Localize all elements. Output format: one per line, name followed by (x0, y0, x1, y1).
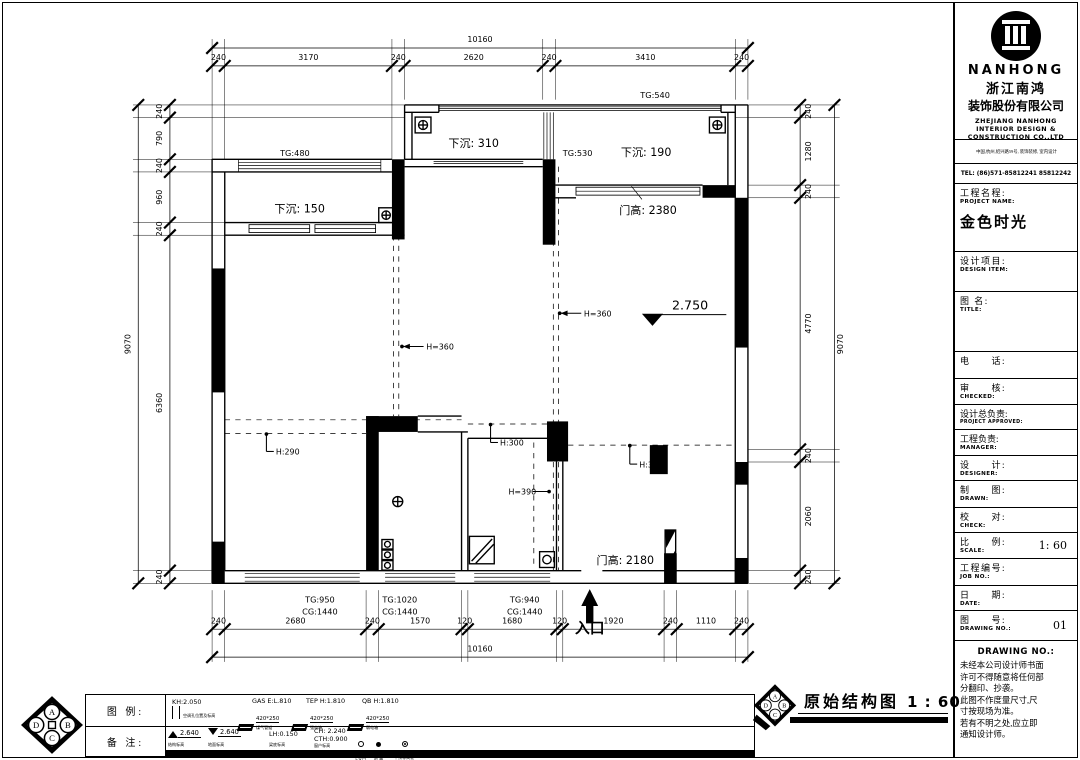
label-cg1440-c: CG:1440 (507, 606, 543, 616)
legend-tep: TEP H:1.810 420*250 强电箱 (292, 697, 345, 731)
dim: 240 (211, 53, 226, 62)
notice-line: 许可不得随意将任何部 (960, 672, 1072, 684)
legend-qb: QB H:1.810 420*250 弱电箱 (348, 697, 399, 731)
stamp-title: 原始结构图1 : 60 (804, 688, 961, 712)
dim: 790 (155, 131, 164, 146)
drawing-sheet: TG:540 下沉: 310 TG:530 下沉: 190 TG:480 下沉:… (0, 0, 1080, 760)
legend-gas-text: GAS E:L.810 (252, 697, 291, 705)
designer-section: 设 计: DESIGNER: (955, 456, 1077, 481)
ac-hole-icon (172, 706, 180, 719)
tel-text: TEL: (86)571-85812241 85812242 (961, 171, 1071, 177)
label-entry: 入口 (575, 620, 605, 637)
scale-section: 比 例: SCALE: 1: 60 (955, 533, 1077, 559)
compass-a: A (773, 695, 778, 701)
legend-struct-level-sub: 结构标高 (168, 742, 198, 748)
designer-label-en: DESIGNER: (960, 471, 1072, 477)
drain-open-icon (358, 741, 364, 747)
dim: 120 (457, 616, 472, 625)
company-cn-2: 装饰股份有限公司 (960, 97, 1072, 114)
stamp-title-text: 原始结构图 (804, 694, 899, 711)
legend-qb-sub: 弱电箱 (366, 725, 378, 731)
stamp-underline-thick (790, 717, 948, 723)
notice-line: 此图不作度量尺寸,尺 (960, 695, 1072, 707)
approved-label-cn: 设计总负责: (960, 407, 1072, 420)
label-sink310: 下沉: 310 (448, 137, 498, 150)
dim-right-total: 9070 (836, 334, 845, 354)
job-label-cn: 工程编号: (960, 561, 1072, 574)
dim: 1280 (804, 141, 813, 161)
legend-struct-level-text: 2.640 (178, 729, 201, 738)
legend-qb-text: QB H:1.810 (362, 697, 399, 705)
company-cn-1: 浙江南鸿 (960, 78, 1072, 97)
drawing-no-section: 图 号: DRAWING NO.: 01 (955, 611, 1077, 641)
title-label-cn: 图 名: (960, 294, 1072, 307)
dim: 240 (734, 616, 749, 625)
legend-ch: CH: 2.240 CTH:0.900 窗户标高 (314, 727, 348, 749)
legend-tep-text: TEP H:1.810 (306, 697, 345, 705)
label-tg950: TG:950 (304, 594, 335, 604)
project-name-section: 工程名程: PROJECT NAME: 金色时光 (955, 184, 1077, 252)
label-h300-b: H:300 (639, 460, 663, 469)
dim: 240 (211, 616, 226, 625)
compass-c: C (773, 713, 777, 719)
dim: 1110 (696, 616, 716, 625)
dim: 2680 (285, 616, 305, 625)
drawing-no-value: 01 (1053, 619, 1067, 632)
sheet-compass-icon: A B C D (16, 694, 88, 756)
drawn-label-cn: 制 图: (960, 483, 1072, 496)
label-h360-b: H=360 (426, 343, 454, 352)
notice-line: 寸按现场为准。 (960, 706, 1072, 718)
brand-name: NANHONG (960, 63, 1072, 78)
floor-plan: TG:540 下沉: 310 TG:530 下沉: 190 TG:480 下沉:… (0, 0, 950, 693)
dim: 960 (155, 190, 164, 205)
stamp-scale-text: 1 : 60 (907, 693, 961, 711)
dim: 2060 (804, 506, 813, 526)
walls (212, 105, 748, 583)
windows (238, 107, 721, 581)
label-h390: H=390 (508, 488, 536, 497)
floor-drain-box-icon (540, 552, 555, 568)
manager-label-cn: 工程负责: (960, 432, 1072, 445)
level-marker-icon (642, 314, 663, 326)
label-h300-a: H:300 (500, 439, 524, 448)
nanhong-logo-icon (991, 11, 1041, 61)
legend-ch-sub: 窗户标高 (314, 743, 345, 749)
dim-left-total: 9070 (123, 334, 132, 354)
legend-drain2-sub: 地 漏 (374, 756, 383, 760)
phone-section: 电 话: (955, 352, 1077, 379)
dim: 240 (734, 53, 749, 62)
legend-lh: LH:0.150 梁底标高 (269, 730, 298, 748)
label-h290: H:290 (276, 448, 300, 457)
notice-line: 通知设计师。 (960, 729, 1072, 741)
dim: 240 (542, 53, 557, 62)
job-no-section: 工程编号: JOB NO.: (955, 559, 1077, 586)
compass-b: B (782, 704, 786, 710)
entry-arrow-icon (581, 589, 598, 606)
design-item-label-cn: 设计项目: (960, 254, 1072, 267)
project-label-cn: 工程名程: (960, 186, 1072, 199)
manager-label-en: MANAGER: (960, 445, 1072, 451)
dim: 1920 (603, 616, 623, 625)
label-cg1440-b: CG:1440 (382, 606, 418, 616)
title-block: NANHONG 浙江南鸿 装饰股份有限公司 ZHEJIANG NANHONG I… (953, 3, 1077, 757)
dim: 240 (663, 616, 678, 625)
label-level: 2.750 (672, 298, 708, 313)
dim: 240 (804, 184, 813, 199)
checked-label-cn: 审 核: (960, 381, 1072, 394)
notice-section: DRAWING NO.: 未经本公司设计师书面 许可不得随意将任何部 分翻印、抄… (955, 641, 1077, 757)
label-tg1020: TG:1020 (381, 594, 417, 604)
checked-label-en: CHECKED: (960, 394, 1072, 400)
label-tg530: TG:530 (562, 148, 593, 158)
notice-line: 未经本公司设计师书面 (960, 660, 1072, 672)
date-label-en: DATE: (960, 601, 1072, 607)
ceiling-level-icon (402, 741, 408, 747)
dim-bottom-total: 10160 (467, 644, 492, 653)
approved-section: 设计总负责: PROJECT APPROVED: (955, 405, 1077, 430)
company-en-1: ZHEJIANG NANHONG (960, 117, 1072, 125)
legend-ch-text: CH: 2.240 (314, 727, 348, 735)
dim: 4770 (804, 313, 813, 333)
scale-value: 1: 60 (1039, 539, 1067, 552)
compass-c: C (49, 733, 55, 743)
legend-floor-level-sub: 地面标高 (208, 742, 238, 748)
notice-line: 若有不明之处,应立即 (960, 718, 1072, 730)
drawing-stamp: A B C D 原始结构图1 : 60 (752, 682, 952, 752)
project-name-value: 金色时光 (960, 211, 1072, 232)
dim: 240 (804, 104, 813, 119)
legend-kh-sub: 空调孔位置及标高 (183, 713, 215, 719)
notice-title: DRAWING NO.: (960, 647, 1072, 657)
designer-label-cn: 设 计: (960, 458, 1072, 471)
dim: 120 (552, 616, 567, 625)
dim: 240 (804, 448, 813, 463)
legend-qb-size: 420*250 (366, 716, 389, 723)
dim: 240 (155, 569, 164, 584)
label-cg1440-a: CG:1440 (302, 606, 338, 616)
label-tg940: TG:940 (509, 594, 540, 604)
dim-top-total: 10160 (467, 35, 492, 44)
dimension-ticks (132, 42, 840, 663)
date-label-cn: 日 期: (960, 588, 1072, 601)
dim: 240 (155, 221, 164, 236)
check-label-cn: 校 对: (960, 510, 1072, 523)
project-label-en: PROJECT NAME: (960, 199, 1072, 205)
dim: 240 (365, 616, 380, 625)
company-address: 中国,杭州,绍兴路59号, 装饰装修, 室内设计 (955, 140, 1077, 164)
title-label-en: TITLE: (960, 307, 1072, 313)
job-label-en: JOB NO.: (960, 574, 1072, 580)
legend-struct-level: 2.640 结构标高 (168, 729, 201, 748)
legend-gas-size: 420*250 (256, 716, 279, 723)
legend-kh-text: KH:2.050 (172, 698, 218, 706)
floor-drain-icon (376, 742, 381, 747)
dim: 1680 (502, 616, 522, 625)
drawing-title-section: 图 名: TITLE: (955, 292, 1077, 352)
legend-floor-level-text: 2.640 (218, 728, 241, 737)
dim: 2620 (464, 53, 484, 62)
stamp-compass-icon: A B C D (752, 682, 798, 738)
check-label-en: CHECK: (960, 523, 1072, 529)
design-item-section: 设计项目: DESIGN ITEM: (955, 252, 1077, 292)
address-text: 中国,杭州,绍兴路59号, 装饰装修, 室内设计 (976, 149, 1057, 155)
legend-kh: KH:2.050 空调孔位置及标高 (172, 698, 218, 719)
compass-d: D (764, 704, 769, 710)
legend-table: 图 例: 备 注: KH:2.050 空调孔位置及标高 GAS E:L.810 … (85, 694, 755, 757)
legend-row1-label: 图 例: (86, 695, 166, 726)
label-door-height-bottom: 门高: 2180 (597, 553, 655, 567)
dim: 240 (155, 158, 164, 173)
legend-bottom-bar (165, 750, 755, 756)
label-sink190: 下沉: 190 (621, 146, 671, 159)
legend-row2-label: 备 注: (86, 726, 166, 756)
dim: 1570 (410, 616, 430, 625)
phone-label-cn: 电 话: (960, 354, 1072, 367)
label-tg480: TG:480 (279, 148, 310, 158)
legend-ch-text2: CTH:0.900 (314, 735, 348, 743)
extension-lines (133, 39, 840, 662)
stamp-underline-thin (798, 713, 948, 714)
label-door-height-top: 门高: 2380 (619, 203, 677, 217)
label-sink150: 下沉: 150 (274, 203, 324, 216)
approved-label-en: PROJECT APPROVED: (960, 420, 1072, 425)
check-section: 校 对: CHECK: (955, 508, 1077, 533)
dim: 3410 (635, 53, 655, 62)
drawn-label-en: DRAWN: (960, 496, 1072, 502)
checked-section: 审 核: CHECKED: (955, 379, 1077, 405)
floor-level-icon (208, 728, 218, 735)
label-h360-a: H=360 (584, 309, 612, 318)
company-en-2: INTERIOR DESIGN & (960, 125, 1072, 133)
company-header: NANHONG 浙江南鸿 装饰股份有限公司 ZHEJIANG NANHONG I… (955, 3, 1077, 140)
compass-b: B (65, 720, 71, 730)
legend-gas: GAS E:L.810 420*250 煤气管道 (238, 697, 291, 731)
dim: 240 (155, 104, 164, 119)
date-section: 日 期: DATE: (955, 586, 1077, 611)
weak-current-box-icon (347, 724, 364, 731)
structure-level-icon (168, 731, 178, 738)
compass-a: A (49, 707, 56, 717)
dim: 6360 (155, 393, 164, 413)
drawn-section: 制 图: DRAWN: (955, 481, 1077, 508)
dim: 240 (391, 53, 406, 62)
legend-divider (86, 726, 754, 727)
legend-lh-sub: 梁底标高 (269, 742, 296, 748)
dim: 240 (804, 569, 813, 584)
legend-tep-size: 420*250 (310, 716, 333, 723)
design-item-label-en: DESIGN ITEM: (960, 267, 1072, 273)
notice-line: 分翻印、抄袭。 (960, 683, 1072, 695)
legend-floor-level: 2.640 地面标高 (208, 728, 241, 748)
compass-d: D (33, 720, 39, 730)
legend-lh-text: LH:0.150 (269, 730, 298, 738)
dim: 3170 (298, 53, 318, 62)
label-tg540: TG:540 (639, 90, 670, 100)
company-tel: TEL: (86)571-85812241 85812242 (955, 164, 1077, 184)
manager-section: 工程负责: MANAGER: (955, 430, 1077, 456)
